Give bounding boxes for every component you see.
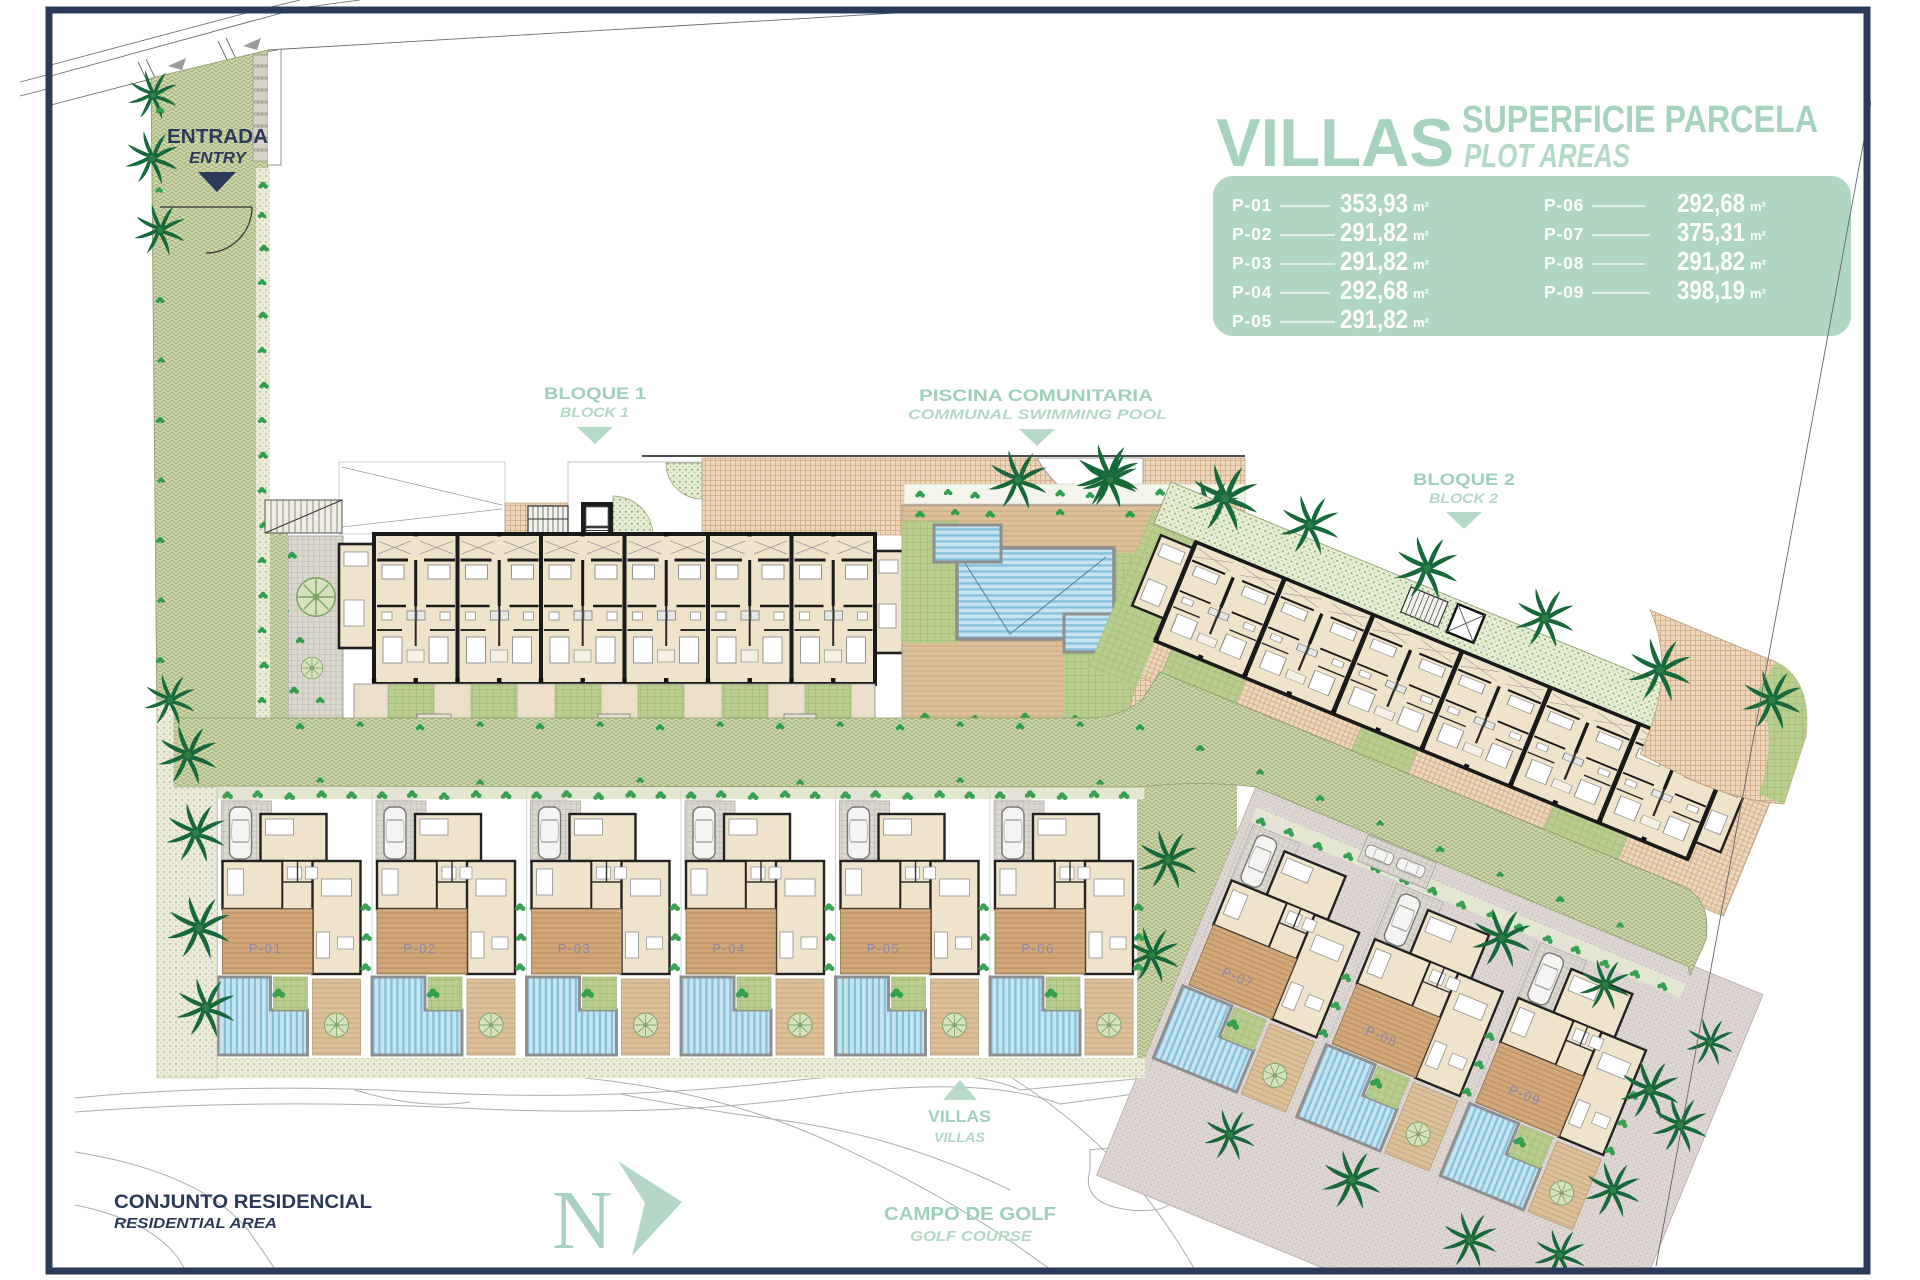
svg-text:353,93: 353,93 <box>1340 188 1408 218</box>
svg-text:P-08: P-08 <box>1544 253 1584 273</box>
svg-text:m²: m² <box>1413 315 1430 330</box>
svg-text:BLOCK 1: BLOCK 1 <box>560 404 629 420</box>
svg-text:P-04: P-04 <box>712 941 745 956</box>
svg-text:m²: m² <box>1413 228 1430 243</box>
svg-text:398,19: 398,19 <box>1677 275 1745 305</box>
svg-text:COMMUNAL SWIMMING POOL: COMMUNAL SWIMMING POOL <box>908 406 1167 422</box>
svg-text:P-03: P-03 <box>558 941 591 956</box>
svg-text:m²: m² <box>1413 199 1430 214</box>
svg-text:N: N <box>552 1174 613 1267</box>
svg-text:VILLAS: VILLAS <box>1216 105 1454 181</box>
svg-text:CAMPO DE GOLF: CAMPO DE GOLF <box>884 1204 1056 1224</box>
svg-text:m²: m² <box>1750 257 1767 272</box>
svg-text:m²: m² <box>1413 257 1430 272</box>
svg-text:CONJUNTO RESIDENCIAL: CONJUNTO RESIDENCIAL <box>114 1192 372 1213</box>
svg-text:291,82: 291,82 <box>1340 304 1408 334</box>
svg-text:VILLAS: VILLAS <box>928 1107 991 1126</box>
svg-text:BLOCK 2: BLOCK 2 <box>1429 490 1498 506</box>
svg-text:P-02: P-02 <box>1232 224 1272 244</box>
svg-text:291,82: 291,82 <box>1340 246 1408 276</box>
svg-text:P-04: P-04 <box>1232 282 1272 302</box>
svg-text:GOLF COURSE: GOLF COURSE <box>910 1228 1033 1245</box>
svg-text:P-01: P-01 <box>249 941 282 956</box>
svg-text:P-01: P-01 <box>1232 195 1272 215</box>
svg-text:375,31: 375,31 <box>1677 217 1745 247</box>
svg-text:m²: m² <box>1750 228 1767 243</box>
svg-text:291,82: 291,82 <box>1340 217 1408 247</box>
svg-text:P-06: P-06 <box>1544 195 1584 215</box>
svg-text:292,68: 292,68 <box>1340 275 1408 305</box>
svg-text:291,82: 291,82 <box>1677 246 1745 276</box>
svg-text:P-07: P-07 <box>1544 224 1584 244</box>
svg-text:VILLAS: VILLAS <box>934 1129 986 1145</box>
svg-text:m²: m² <box>1750 286 1767 301</box>
svg-text:RESIDENTIAL AREA: RESIDENTIAL AREA <box>114 1215 277 1232</box>
svg-text:m²: m² <box>1750 199 1767 214</box>
svg-text:SUPERFICIE PARCELA: SUPERFICIE PARCELA <box>1462 99 1818 141</box>
svg-text:P-09: P-09 <box>1544 282 1584 302</box>
svg-text:m²: m² <box>1413 286 1430 301</box>
svg-text:BLOQUE 2: BLOQUE 2 <box>1413 470 1515 489</box>
svg-text:P-05: P-05 <box>1232 311 1272 331</box>
svg-text:ENTRY: ENTRY <box>189 150 248 167</box>
svg-text:ENTRADA: ENTRADA <box>167 125 268 148</box>
svg-text:P-03: P-03 <box>1232 253 1272 273</box>
svg-text:P-06: P-06 <box>1021 941 1054 956</box>
svg-text:P-05: P-05 <box>867 941 900 956</box>
svg-text:PLOT AREAS: PLOT AREAS <box>1464 137 1630 174</box>
svg-text:BLOQUE 1: BLOQUE 1 <box>544 384 646 403</box>
svg-text:P-02: P-02 <box>403 941 436 956</box>
svg-text:292,68: 292,68 <box>1677 188 1745 218</box>
svg-text:PISCINA COMUNITARIA: PISCINA COMUNITARIA <box>919 386 1153 405</box>
